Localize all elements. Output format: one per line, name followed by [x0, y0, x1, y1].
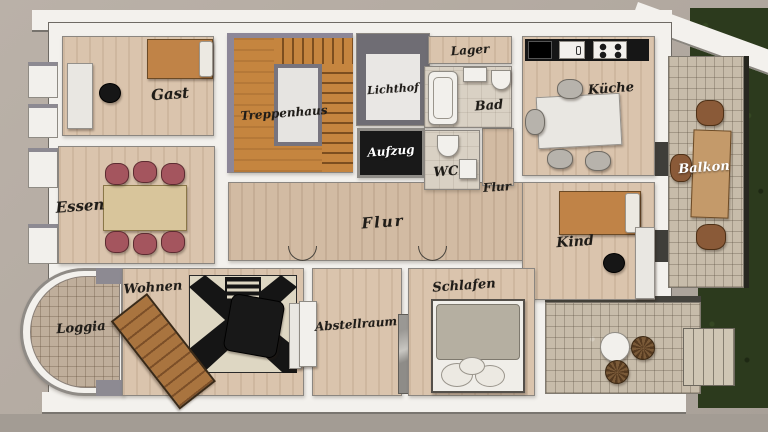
- desk-gast: [67, 63, 93, 129]
- room-bad: [424, 66, 512, 128]
- room-flur-arm: [482, 128, 514, 186]
- bed-blanket: [436, 304, 520, 360]
- room-essen: [58, 146, 215, 264]
- faucet: [576, 46, 581, 55]
- office-chair-kind: [603, 253, 625, 273]
- sidewalk-band: [0, 414, 768, 432]
- room-lager: [428, 36, 512, 64]
- toilet-bad: [491, 70, 511, 90]
- dining-chair-6: [161, 231, 185, 253]
- desk-kind: [635, 227, 655, 299]
- kitchen-chair-1: [557, 79, 583, 99]
- balkon-chair-top: [696, 100, 724, 126]
- dining-chair-5: [133, 233, 157, 255]
- balkon-railing: [744, 56, 749, 288]
- bay-window-3: [28, 148, 58, 188]
- room-kind: [522, 182, 655, 300]
- terrace-steps: [683, 328, 735, 386]
- balkon-door-kind: [654, 230, 668, 262]
- room-abstellraum: [312, 268, 402, 396]
- kitchen-chair-2: [525, 109, 545, 135]
- bay-window-2: [28, 104, 58, 138]
- office-chair-gast: [99, 83, 121, 103]
- room-kueche: [522, 36, 655, 176]
- wicker-chair-2: [605, 360, 629, 384]
- stair-void: [274, 64, 322, 146]
- balkon-table: [690, 129, 731, 218]
- kitchen-sink: [559, 41, 585, 59]
- dining-chair-4: [105, 231, 129, 253]
- lichthof-floor: [366, 54, 420, 120]
- room-wohnen: [122, 268, 304, 396]
- toilet-wc: [437, 135, 459, 157]
- open-door-panel: [299, 301, 317, 367]
- floor-plan-canvas: Gast Treppenhaus Lichthof Aufzug Lager B…: [0, 0, 768, 432]
- stair-treads-top: [274, 38, 353, 64]
- dining-chair-2: [133, 161, 157, 183]
- loggia-pillar-bottom: [96, 380, 122, 396]
- sofa: [222, 293, 285, 359]
- kitchen-counter: [525, 39, 649, 61]
- room-treppenhaus: [227, 33, 353, 173]
- bathtub-basin: [433, 77, 453, 119]
- balkon-chair-left: [670, 154, 692, 182]
- bed-pillow-3: [459, 357, 485, 375]
- bay-window-1: [28, 62, 58, 98]
- kitchen-table: [536, 93, 623, 149]
- terrace-round-table: [600, 332, 630, 362]
- fridge: [528, 41, 552, 59]
- pillow-gast: [199, 41, 213, 77]
- room-lichthof: [356, 33, 430, 126]
- kitchen-chair-4: [585, 151, 611, 171]
- bed-schlafen: [431, 299, 525, 393]
- wicker-chair-1: [631, 336, 655, 360]
- stove: [593, 41, 627, 59]
- stair-treads-right: [322, 64, 353, 172]
- kitchen-chair-3: [547, 149, 573, 169]
- room-gast: [62, 36, 214, 136]
- balkon-chair-bottom: [696, 224, 726, 250]
- dining-chair-1: [105, 163, 129, 185]
- bay-window-4: [28, 224, 58, 264]
- balkon-door-kueche: [654, 142, 668, 176]
- room-aufzug: [357, 128, 425, 178]
- bathtub: [428, 71, 458, 125]
- sink-wc: [459, 159, 477, 179]
- room-wc: [424, 130, 480, 190]
- dining-chair-3: [161, 163, 185, 185]
- room-schlafen: [408, 268, 535, 396]
- sink-bad: [463, 67, 487, 82]
- room-flur-main: [228, 182, 538, 261]
- dining-table: [103, 185, 187, 231]
- loggia-pillar-top: [96, 268, 122, 284]
